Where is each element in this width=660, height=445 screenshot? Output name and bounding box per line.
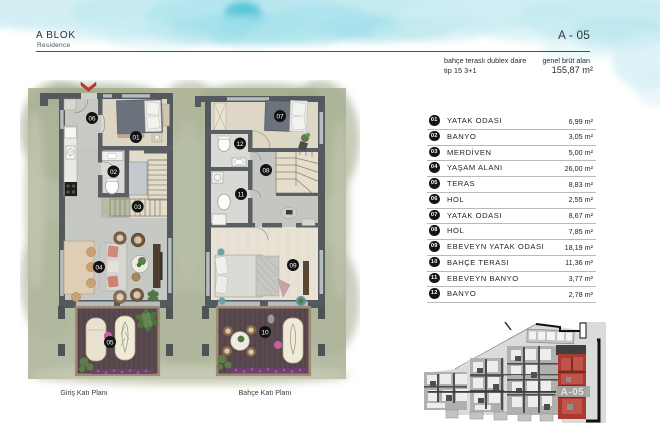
svg-text:12: 12 xyxy=(236,141,244,148)
svg-text:02: 02 xyxy=(110,169,118,176)
svg-text:01: 01 xyxy=(132,134,140,141)
svg-text:A-05: A-05 xyxy=(561,387,585,398)
svg-text:09: 09 xyxy=(289,262,297,269)
svg-text:08: 08 xyxy=(262,167,270,174)
svg-text:04: 04 xyxy=(95,264,103,271)
svg-text:07: 07 xyxy=(276,113,284,120)
svg-text:11: 11 xyxy=(238,191,245,198)
svg-text:10: 10 xyxy=(261,329,269,336)
svg-text:05: 05 xyxy=(106,339,114,346)
svg-text:03: 03 xyxy=(134,204,142,211)
svg-text:06: 06 xyxy=(88,115,96,122)
